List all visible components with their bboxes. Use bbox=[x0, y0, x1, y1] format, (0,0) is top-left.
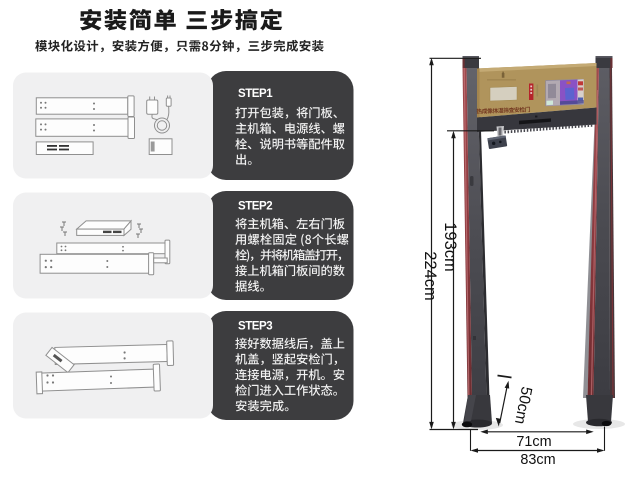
svg-text:STEP1: STEP1 bbox=[238, 88, 273, 100]
svg-text:193cm: 193cm bbox=[441, 222, 459, 272]
svg-text:71cm: 71cm bbox=[516, 434, 551, 450]
svg-text:224cm: 224cm bbox=[421, 251, 439, 301]
svg-text:STEP3: STEP3 bbox=[238, 321, 272, 333]
svg-text:83cm: 83cm bbox=[520, 452, 555, 468]
svg-text:STEP2: STEP2 bbox=[238, 201, 272, 213]
